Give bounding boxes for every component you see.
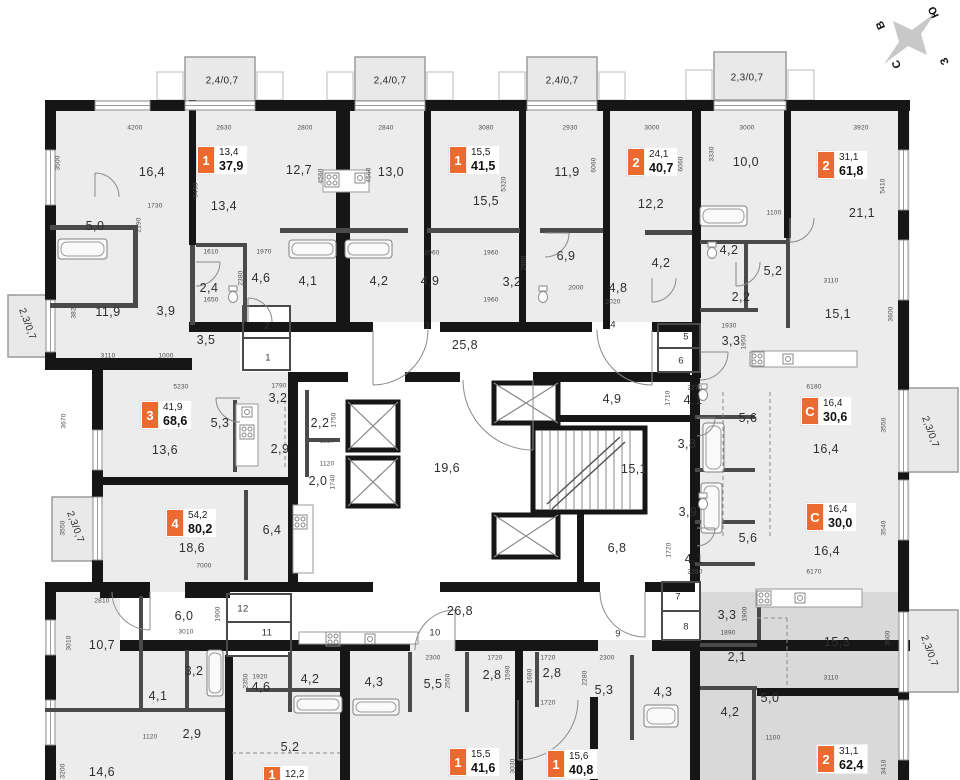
living-area-value: 16,4 bbox=[828, 504, 852, 516]
apartment-areas: 41,968,6 bbox=[159, 401, 191, 429]
dimension-label: 5230 bbox=[173, 384, 188, 391]
apartment-type-number: 2 bbox=[817, 151, 835, 179]
total-area-value: 68,6 bbox=[163, 414, 187, 428]
dimension-label: 1970 bbox=[256, 249, 271, 256]
compass-letter: Ю bbox=[926, 4, 942, 19]
dimension-label: 2350 bbox=[243, 673, 250, 688]
room-area-label: 15,1 bbox=[621, 462, 647, 476]
dimension-label: 2300 bbox=[425, 655, 440, 662]
compass-letter: В bbox=[874, 19, 888, 31]
room-area-label: 4,1 bbox=[299, 274, 318, 288]
room-area-label: 4,2 bbox=[720, 243, 739, 257]
apartment-badge[interactable]: 231,162,4 bbox=[817, 745, 867, 773]
dimension-label: 1790 bbox=[271, 383, 286, 390]
room-area-label: 4,3 bbox=[365, 675, 384, 689]
dimension-label: 2900 bbox=[521, 255, 528, 270]
room-area-label: 4,1 bbox=[149, 689, 168, 703]
dimension-label: 2060 bbox=[424, 250, 439, 257]
room-area-label: 5,6 bbox=[739, 411, 758, 425]
apartment-type-number: C bbox=[806, 503, 824, 531]
balcony-size-label: 2,3/0,7 bbox=[16, 307, 38, 341]
dimension-label: 1920 bbox=[252, 674, 267, 681]
room-area-label: 15,3 bbox=[824, 635, 850, 649]
apartment-badge[interactable]: C16,430,6 bbox=[801, 397, 851, 425]
dimension-label: 2380 bbox=[238, 270, 245, 285]
dimension-label: 1120 bbox=[320, 461, 335, 468]
apartment-badge[interactable]: 231,161,8 bbox=[817, 151, 867, 179]
apartment-areas: 15,541,5 bbox=[467, 146, 499, 174]
dimension-label: 3550 bbox=[881, 417, 888, 432]
dimension-label: 3540 bbox=[881, 520, 888, 535]
room-area-label: 3,2 bbox=[269, 391, 288, 405]
apartment-badge[interactable]: 341,968,6 bbox=[141, 401, 191, 429]
apartment-badge[interactable]: 115,541,5 bbox=[449, 146, 499, 174]
room-area-label: 26,8 bbox=[447, 604, 473, 618]
dimension-label: 3110 bbox=[101, 353, 116, 360]
room-area-label: 12,7 bbox=[286, 163, 312, 177]
room-area-label: 5,3 bbox=[595, 683, 614, 697]
apartment-badge[interactable]: 115,541,6 bbox=[449, 748, 499, 776]
door-number: 8 bbox=[683, 622, 689, 633]
total-area-value: 30,0 bbox=[828, 516, 852, 530]
dimension-label: 3410 bbox=[881, 759, 888, 774]
compass-letter: З bbox=[938, 55, 952, 66]
door-number: 5 bbox=[683, 332, 689, 343]
dimension-label: 5410 bbox=[880, 178, 887, 193]
dimension-label: 2550 bbox=[445, 673, 452, 688]
dimension-label: 1100 bbox=[767, 210, 782, 217]
room-area-label: 2,9 bbox=[271, 442, 290, 456]
room-area-label: 4,6 bbox=[252, 680, 271, 694]
dimension-label: 1890 bbox=[720, 630, 735, 637]
apartment-badge[interactable]: 115,640,8 bbox=[547, 750, 597, 778]
dimension-label: 2930 bbox=[562, 125, 577, 132]
room-area-label: 3,9 bbox=[679, 505, 698, 519]
door-number: 1 bbox=[265, 353, 271, 364]
living-area-value: 31,1 bbox=[839, 746, 863, 758]
dimension-label: 1950 bbox=[741, 334, 748, 349]
room-area-label: 2,8 bbox=[483, 668, 502, 682]
dimension-label: 3010 bbox=[66, 635, 73, 650]
room-area-label: 13,4 bbox=[211, 199, 237, 213]
dimension-label: 2280 bbox=[582, 670, 589, 685]
balcony-size-label: 2,4/0,7 bbox=[206, 76, 239, 87]
room-area-label: 4,2 bbox=[721, 705, 740, 719]
room-area-label: 4,2 bbox=[652, 256, 671, 270]
dimension-label: 1120 bbox=[143, 734, 158, 741]
door-number: 11 bbox=[262, 628, 272, 639]
dimension-label: 1450 bbox=[190, 280, 197, 295]
dimension-label: 2270 bbox=[687, 385, 702, 392]
dimension-label: 3000 bbox=[644, 125, 659, 132]
room-area-label: 2,2 bbox=[311, 416, 330, 430]
dimension-label: 3200 bbox=[60, 763, 67, 778]
apartment-type-number: C bbox=[801, 397, 819, 425]
total-area-value: 41,5 bbox=[471, 159, 495, 173]
room-area-label: 2,2 bbox=[732, 290, 751, 304]
compass-letter: С bbox=[890, 58, 904, 70]
living-area-value: 15,5 bbox=[471, 147, 495, 159]
living-area-value: 24,1 bbox=[649, 149, 673, 161]
dimension-label: 1710 bbox=[665, 390, 672, 405]
dimension-label: 1730 bbox=[147, 203, 162, 210]
dimension-label: 3010 bbox=[178, 629, 193, 636]
total-area-value: 80,2 bbox=[188, 522, 212, 536]
room-area-label: 2,1 bbox=[728, 650, 747, 664]
apartment-badge[interactable]: 112,2 bbox=[263, 766, 308, 780]
room-area-label: 15,1 bbox=[825, 307, 851, 321]
dimension-label: 1590 bbox=[505, 665, 512, 680]
living-area-value: 16,4 bbox=[823, 398, 847, 410]
room-area-label: 2,0 bbox=[309, 474, 328, 488]
room-area-label: 4,1 bbox=[684, 393, 703, 407]
room-area-label: 21,1 bbox=[849, 206, 875, 220]
dimension-label: 5320 bbox=[501, 176, 508, 191]
room-area-label: 4,2 bbox=[301, 672, 320, 686]
balcony-size-label: 2,3/0,7 bbox=[919, 415, 941, 449]
dimension-label: 2280 bbox=[687, 569, 702, 576]
dimension-label: 3110 bbox=[824, 278, 839, 285]
apartment-badge[interactable]: C16,430,0 bbox=[806, 503, 856, 531]
room-area-label: 19,6 bbox=[434, 461, 460, 475]
dimension-label: 3000 bbox=[739, 125, 754, 132]
apartment-type-number: 1 bbox=[449, 748, 467, 776]
dimension-label: 3030 bbox=[510, 758, 517, 773]
room-area-label: 4,2 bbox=[370, 274, 389, 288]
door-number: 12 bbox=[237, 604, 248, 615]
room-area-label: 4,6 bbox=[252, 271, 271, 285]
dimension-label: 3600 bbox=[888, 306, 895, 321]
living-area-value: 12,2 bbox=[285, 769, 304, 780]
dimension-label: 4560 bbox=[366, 167, 373, 182]
total-area-value: 40,7 bbox=[649, 161, 673, 175]
dimension-label: 3110 bbox=[824, 675, 839, 682]
living-area-value: 13,4 bbox=[219, 147, 243, 159]
room-area-label: 3,8 bbox=[678, 437, 697, 451]
apartment-type-number: 1 bbox=[547, 750, 565, 778]
apartment-badge[interactable]: 224,140,7 bbox=[627, 148, 677, 176]
dimension-label: 3600 bbox=[885, 630, 892, 645]
living-area-value: 41,9 bbox=[163, 402, 187, 414]
dimension-label: 1930 bbox=[721, 323, 736, 330]
living-area-value: 15,6 bbox=[569, 751, 593, 763]
dimension-label: 2300 bbox=[599, 655, 614, 662]
dimension-label: 3670 bbox=[61, 413, 68, 428]
balcony-size-label: 2,3/0,7 bbox=[64, 510, 86, 544]
living-area-value: 15,5 bbox=[471, 749, 495, 761]
apartment-areas: 15,640,8 bbox=[565, 750, 597, 778]
room-area-label: 11,9 bbox=[95, 305, 120, 319]
room-area-label: 13,0 bbox=[378, 165, 404, 179]
room-area-label: 2,9 bbox=[183, 727, 202, 741]
room-area-label: 4,9 bbox=[603, 392, 622, 406]
apartment-type-number: 1 bbox=[197, 146, 215, 174]
dimension-label: 5460 bbox=[193, 182, 200, 197]
room-area-label: 16,4 bbox=[813, 442, 839, 456]
apartment-areas: 31,162,4 bbox=[835, 745, 867, 773]
dimension-label: 3820 bbox=[71, 303, 78, 318]
dimension-label: 1960 bbox=[483, 297, 498, 304]
apartment-areas: 12,2 bbox=[281, 766, 308, 780]
total-area-value: 41,6 bbox=[471, 761, 495, 775]
dimension-label: 1720 bbox=[666, 542, 673, 557]
room-area-label: 3,2 bbox=[503, 275, 522, 289]
dimension-label: 1100 bbox=[766, 735, 781, 742]
apartment-areas: 16,430,0 bbox=[824, 503, 856, 531]
dimension-label: 7000 bbox=[196, 563, 211, 570]
room-area-label: 5,2 bbox=[764, 264, 783, 278]
dimension-label: 1900 bbox=[215, 606, 222, 621]
room-area-label: 5,0 bbox=[86, 219, 105, 233]
dimension-label: 3330 bbox=[709, 146, 716, 161]
room-area-label: 10,0 bbox=[733, 155, 759, 169]
door-number: 6 bbox=[678, 356, 684, 367]
balcony-size-label: 2,3/0,7 bbox=[918, 634, 940, 668]
room-area-label: 3,3 bbox=[718, 608, 737, 622]
living-area-value: 31,1 bbox=[839, 152, 863, 164]
dimension-label: 1120 bbox=[320, 438, 335, 445]
room-area-label: 2,4 bbox=[200, 281, 219, 295]
dimension-label: 1900 bbox=[742, 606, 749, 621]
room-area-label: 6,8 bbox=[608, 541, 627, 555]
room-area-label: 16,4 bbox=[139, 165, 165, 179]
room-area-label: 5,6 bbox=[739, 531, 758, 545]
room-area-label: 4,1 bbox=[685, 552, 704, 566]
door-number: 2 bbox=[264, 321, 270, 332]
door-number: 3 bbox=[424, 321, 430, 332]
dimension-label: 2000 bbox=[568, 285, 583, 292]
room-area-label: 3,9 bbox=[157, 304, 176, 318]
dimension-label: 6180 bbox=[806, 384, 821, 391]
dimension-label: 6060 bbox=[678, 156, 685, 171]
dimension-label: 1000 bbox=[158, 353, 173, 360]
room-area-label: 3,2 bbox=[185, 664, 204, 678]
door-number: 4 bbox=[610, 320, 616, 331]
apartment-type-number: 3 bbox=[141, 401, 159, 429]
dimension-label: 2840 bbox=[378, 125, 393, 132]
room-area-label: 5,2 bbox=[281, 740, 300, 754]
balcony-size-label: 2,4/0,7 bbox=[546, 76, 579, 87]
dimension-label: 3550 bbox=[60, 520, 67, 535]
apartment-type-number: 4 bbox=[166, 509, 184, 537]
balcony-size-label: 2,4/0,7 bbox=[374, 76, 407, 87]
dimension-label: 6060 bbox=[591, 157, 598, 172]
room-area-label: 5,3 bbox=[211, 416, 230, 430]
dimension-label: 3500 bbox=[55, 155, 62, 170]
room-area-label: 25,8 bbox=[452, 338, 478, 352]
room-area-label: 10,7 bbox=[89, 638, 115, 652]
dimension-label: 2630 bbox=[216, 125, 231, 132]
door-number: 10 bbox=[429, 628, 440, 639]
apartment-type-number: 2 bbox=[627, 148, 645, 176]
room-area-label: 12,2 bbox=[638, 197, 664, 211]
room-area-label: 3,5 bbox=[197, 333, 216, 347]
room-area-label: 11,9 bbox=[554, 165, 579, 179]
apartment-badge[interactable]: 454,280,2 bbox=[166, 509, 216, 537]
dimension-label: 2800 bbox=[297, 125, 312, 132]
total-area-value: 62,4 bbox=[839, 758, 863, 772]
room-area-label: 5,5 bbox=[424, 677, 443, 691]
dimension-label: 2810 bbox=[94, 598, 109, 605]
apartment-areas: 54,280,2 bbox=[184, 509, 216, 537]
room-area-label: 18,6 bbox=[179, 541, 205, 555]
room-area-label: 6,9 bbox=[557, 249, 576, 263]
apartment-badge[interactable]: 113,437,9 bbox=[197, 146, 247, 174]
room-area-label: 13,6 bbox=[152, 443, 178, 457]
dimension-label: 4560 bbox=[318, 168, 325, 183]
balcony-size-label: 2,3/0,7 bbox=[731, 73, 764, 84]
room-area-label: 6,0 bbox=[175, 609, 194, 623]
dimension-label: 1650 bbox=[203, 297, 218, 304]
apartment-areas: 13,437,9 bbox=[215, 146, 247, 174]
dimension-label: 1750 bbox=[331, 412, 338, 427]
door-number: 9 bbox=[615, 629, 621, 640]
door-number: 7 bbox=[675, 592, 681, 603]
room-area-label: 16,4 bbox=[814, 544, 840, 558]
total-area-value: 61,8 bbox=[839, 164, 863, 178]
total-area-value: 40,8 bbox=[569, 763, 593, 777]
dimension-label: 6170 bbox=[806, 569, 821, 576]
room-area-label: 4,8 bbox=[609, 281, 628, 295]
room-area-label: 15,5 bbox=[473, 194, 499, 208]
apartment-type-number: 1 bbox=[449, 146, 467, 174]
dimension-label: 1740 bbox=[330, 474, 337, 489]
dimension-label: 3080 bbox=[478, 125, 493, 132]
apartment-areas: 24,140,7 bbox=[645, 148, 677, 176]
room-area-label: 4,3 bbox=[654, 685, 673, 699]
dimension-label: 1720 bbox=[487, 655, 502, 662]
dimension-label: 1680 bbox=[527, 668, 534, 683]
total-area-value: 37,9 bbox=[219, 159, 243, 173]
dimension-label: 4200 bbox=[127, 125, 142, 132]
apartment-type-number: 2 bbox=[817, 745, 835, 773]
dimension-label: 3920 bbox=[853, 125, 868, 132]
room-area-label: 4,9 bbox=[421, 274, 440, 288]
dimension-label: 1960 bbox=[483, 250, 498, 257]
room-area-label: 5,0 bbox=[761, 691, 780, 705]
room-area-label: 3,3 bbox=[722, 334, 741, 348]
total-area-value: 30,6 bbox=[823, 410, 847, 424]
apartment-areas: 16,430,6 bbox=[819, 397, 851, 425]
room-area-label: 14,6 bbox=[89, 765, 115, 779]
floor-plan-page: 16,45,011,93,913,42,43,54,612,713,04,14,… bbox=[0, 0, 960, 780]
room-area-label: 6,4 bbox=[263, 523, 282, 537]
dimension-label: 1720 bbox=[540, 655, 555, 662]
labels-layer: 16,45,011,93,913,42,43,54,612,713,04,14,… bbox=[0, 0, 960, 780]
apartment-areas: 15,541,6 bbox=[467, 748, 499, 776]
room-area-label: 2,8 bbox=[543, 666, 562, 680]
dimension-label: 2190 bbox=[136, 217, 143, 232]
dimension-label: 2020 bbox=[605, 299, 620, 306]
apartment-type-number: 1 bbox=[263, 766, 281, 780]
living-area-value: 54,2 bbox=[188, 510, 212, 522]
dimension-label: 1610 bbox=[203, 249, 218, 256]
dimension-label: 1720 bbox=[540, 700, 555, 707]
apartment-areas: 31,161,8 bbox=[835, 151, 867, 179]
